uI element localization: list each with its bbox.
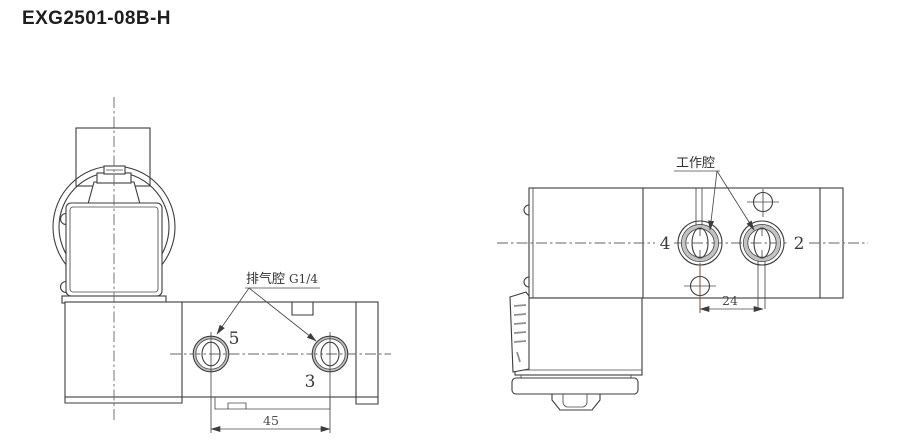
exhaust-label: 排气腔	[246, 271, 285, 287]
right-view: 4 2 工作腔 24	[497, 156, 868, 410]
port-2-label: 2	[794, 234, 805, 254]
cable-connector	[552, 394, 600, 410]
valve-body-front	[65, 302, 378, 409]
port-3-label: 3	[305, 372, 316, 392]
port-5-label: 5	[229, 329, 240, 349]
bottom-tab	[228, 403, 246, 409]
port-4-label: 4	[660, 234, 671, 254]
dimension-45-value: 45	[263, 413, 279, 428]
exhaust-spec: G1/4	[289, 272, 318, 286]
drawing-canvas: EXG2501-08B-H	[0, 0, 900, 440]
working-label: 工作腔	[676, 156, 715, 171]
solenoid-coil-side	[515, 298, 642, 375]
nameplate-sticker	[510, 292, 529, 372]
coil-flange-side	[512, 378, 638, 394]
valve-drawing: 5 3 排气腔 G1/4 45	[0, 0, 900, 440]
left-view: 5 3 排气腔 G1/4 45	[53, 97, 391, 433]
dimension-45: 45	[211, 413, 330, 429]
dimension-24-value: 24	[722, 293, 738, 308]
